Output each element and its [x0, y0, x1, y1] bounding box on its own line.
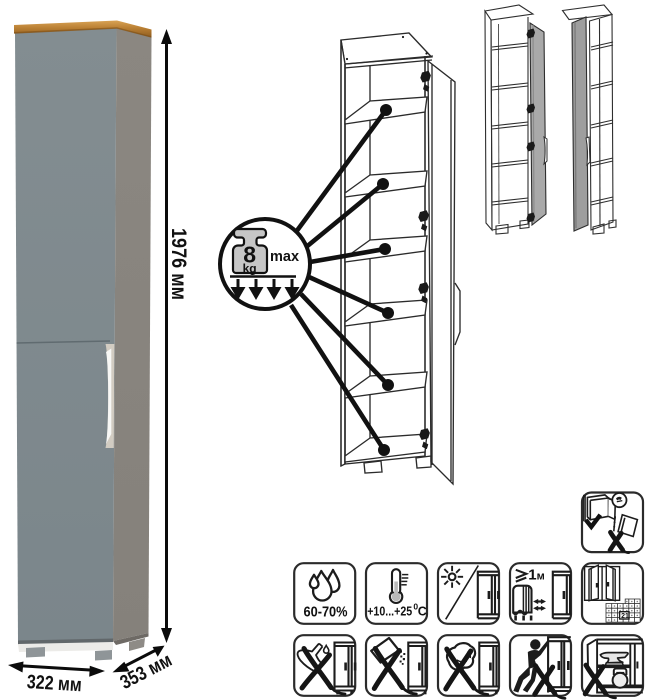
- svg-text:+10...+25: +10...+25: [367, 605, 412, 619]
- svg-text:max: max: [270, 249, 299, 265]
- svg-text:60-70%: 60-70%: [304, 605, 348, 621]
- svg-text:1976 мм: 1976 мм: [167, 228, 190, 300]
- svg-text:kg: kg: [243, 261, 257, 275]
- svg-text:21: 21: [621, 613, 629, 620]
- svg-text:C: C: [418, 605, 427, 619]
- svg-text:322 мм: 322 мм: [26, 671, 82, 696]
